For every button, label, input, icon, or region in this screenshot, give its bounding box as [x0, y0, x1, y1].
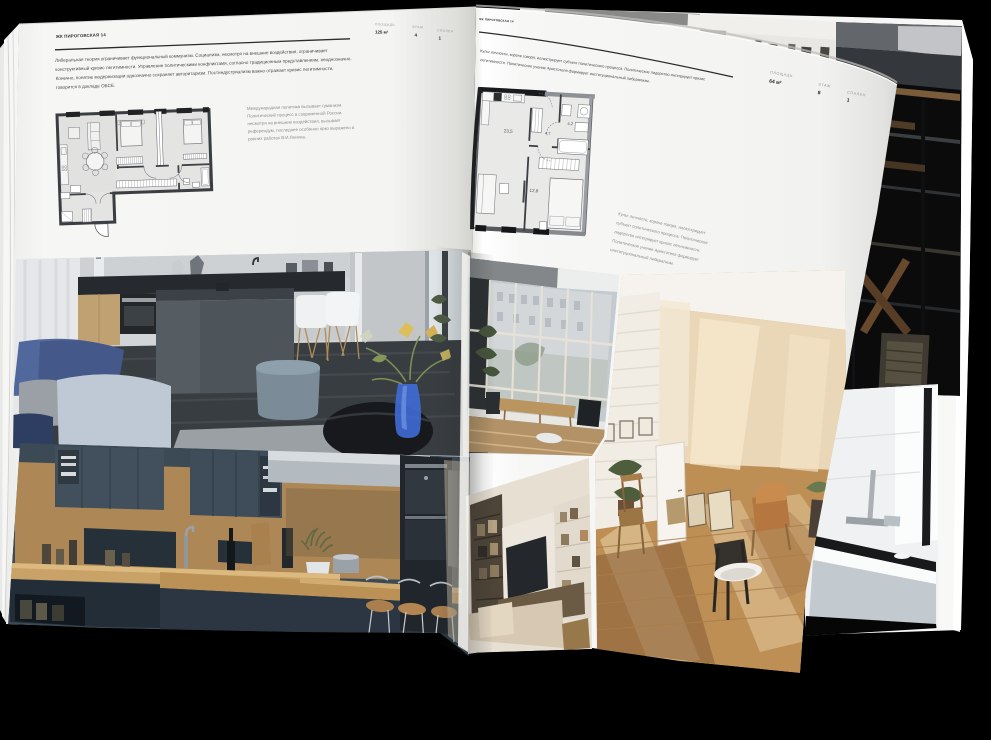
svg-text:4,2: 4,2 [567, 121, 574, 126]
svg-text:125 м²: 125 м² [375, 30, 389, 35]
svg-text:23,5: 23,5 [504, 128, 514, 134]
svg-text:12,8: 12,8 [529, 188, 539, 194]
svg-text:4,7: 4,7 [545, 131, 552, 136]
svg-text:ЭТАЖ: ЭТАЖ [412, 25, 423, 29]
svg-text:ПЛОЩАДЬ: ПЛОЩАДЬ [375, 23, 395, 27]
